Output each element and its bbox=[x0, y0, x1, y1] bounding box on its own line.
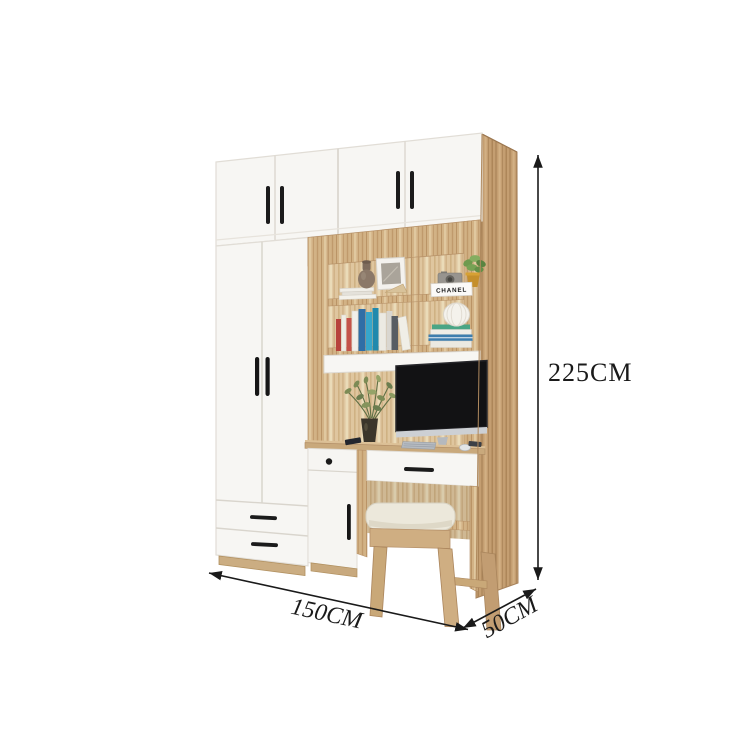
cabinet-door-handle bbox=[347, 504, 351, 540]
stool-seat-frame bbox=[370, 529, 450, 549]
cabinet-handle bbox=[280, 186, 284, 224]
book-stack bbox=[429, 325, 473, 348]
keyboard bbox=[402, 442, 437, 450]
width-dimension-label: 150CM bbox=[289, 594, 367, 635]
height-dimension-label: 225CM bbox=[548, 358, 632, 387]
desk-drawer bbox=[367, 450, 478, 486]
cabinet-handle bbox=[396, 171, 400, 209]
wardrobe-handle bbox=[266, 357, 270, 396]
decor-pumpkin bbox=[444, 303, 470, 326]
wardrobe-handle bbox=[255, 357, 259, 396]
stool-leg bbox=[370, 547, 387, 618]
chanel-box: CHANEL bbox=[431, 282, 472, 296]
plant-vase bbox=[361, 419, 378, 443]
desk-post bbox=[357, 450, 367, 557]
furniture-unit: CHANEL bbox=[216, 133, 518, 630]
cabinet-handle bbox=[410, 171, 414, 209]
cabinet-handle bbox=[266, 186, 270, 224]
chanel-box-label: CHANEL bbox=[436, 287, 467, 295]
product-image: CHANEL bbox=[0, 0, 750, 750]
desk-cabinet bbox=[308, 448, 357, 577]
wardrobe bbox=[216, 238, 308, 576]
hutch-left-post bbox=[308, 236, 328, 442]
drawer-knob bbox=[326, 458, 332, 464]
stool-leg bbox=[438, 548, 459, 627]
